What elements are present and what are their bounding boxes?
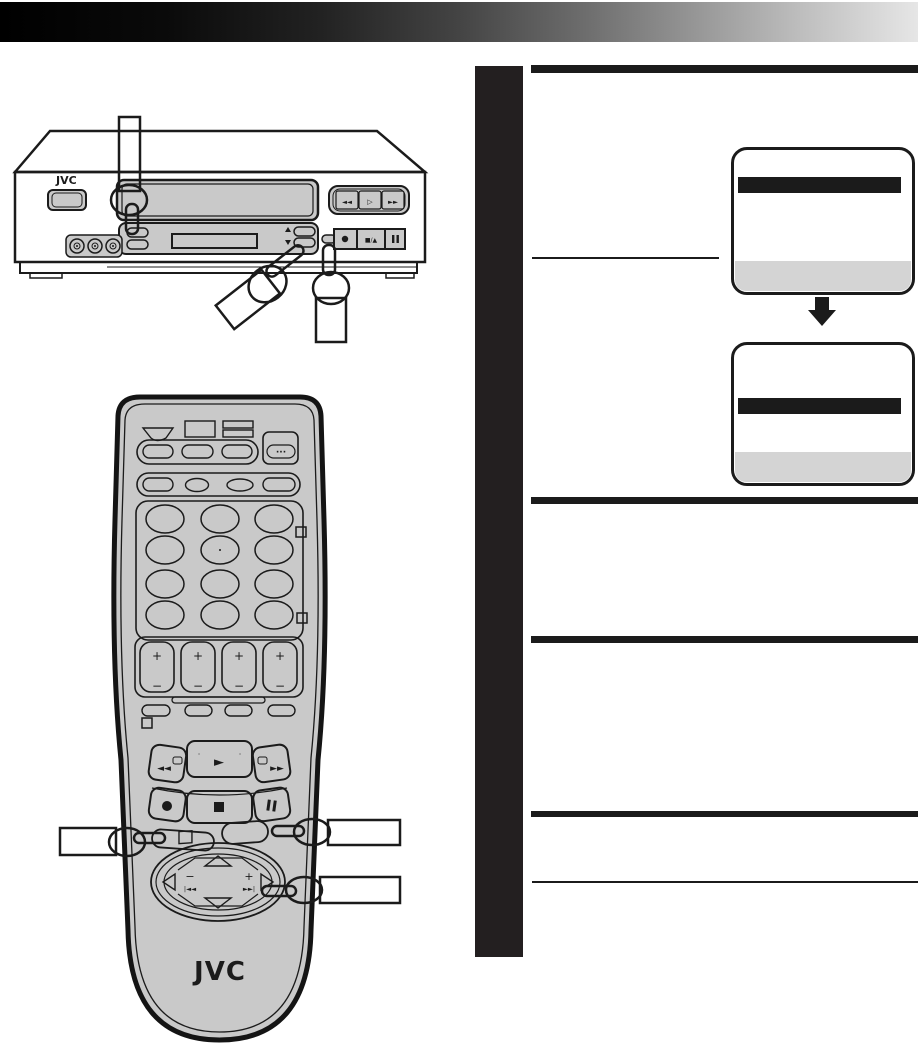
svg-text:+: + <box>152 649 162 663</box>
manual-page: JVC ◄◄ ▷ ►► ■ <box>0 0 918 1047</box>
svg-text:+: + <box>275 649 285 663</box>
section-side-bar <box>475 66 523 957</box>
skip-back-icon: |◄◄ <box>184 885 196 893</box>
record-icon <box>162 801 172 811</box>
down-arrow-icon <box>806 297 838 329</box>
vcr-foot-right <box>386 273 414 278</box>
osd-screen-2 <box>731 342 915 486</box>
svg-text:−: − <box>275 679 285 693</box>
skip-fwd-icon: ►►| <box>243 885 255 893</box>
dpad-minus-label: − <box>185 870 194 883</box>
vcr-top-face <box>15 131 425 172</box>
vcr-illustration: JVC ◄◄ ▷ ►► ■ <box>0 110 460 340</box>
svg-text:−: − <box>152 679 162 693</box>
key5-nub <box>219 549 221 551</box>
step-divider-rule-2 <box>531 497 918 504</box>
vcr-stop-eject-icon: ■/▲ <box>365 237 378 244</box>
vcr-ff-icon: ►► <box>388 198 398 206</box>
remote-illustration: ··· + − + − + − + <box>40 390 410 1047</box>
step-divider-rule-thin-2 <box>532 881 918 883</box>
remote-brand-logo: JVC <box>192 957 246 987</box>
vcr-rewind-icon: ◄◄ <box>342 198 352 206</box>
play-icon: ► <box>214 755 224 770</box>
rewind-icon: ◄◄ <box>157 764 171 774</box>
svg-text:+: + <box>193 649 203 663</box>
step-divider-rule-thin-1 <box>532 257 719 259</box>
vcr-record-icon <box>342 236 348 242</box>
vcr-pause-button <box>385 229 405 249</box>
svg-text:−: − <box>234 679 244 693</box>
dpad-plus-label: + <box>244 870 253 883</box>
osd2-highlight-bar <box>738 398 901 414</box>
vcr-brand-logo: JVC <box>55 174 77 187</box>
osd1-highlight-bar <box>738 177 901 193</box>
play-dot-left: · <box>198 750 201 759</box>
page-header-gradient-bar <box>0 2 918 42</box>
step-divider-rule-1 <box>531 65 918 73</box>
play-dot-right: · <box>239 750 242 759</box>
stop-icon <box>214 802 224 812</box>
ff-icon: ►► <box>270 764 284 774</box>
step-divider-rule-3 <box>531 636 918 643</box>
osd-screen-1 <box>731 147 915 295</box>
svg-text:+: + <box>234 649 244 663</box>
vcr-play-icon: ▷ <box>367 198 373 206</box>
hand-press-vcr-input <box>313 245 349 342</box>
vcr-foot-left <box>30 273 62 278</box>
dots-icon: ··· <box>276 448 286 458</box>
step-divider-rule-4 <box>531 811 918 817</box>
osd1-footer-bar <box>735 261 911 291</box>
svg-text:−: − <box>193 679 203 693</box>
osd2-footer-bar <box>735 452 911 482</box>
